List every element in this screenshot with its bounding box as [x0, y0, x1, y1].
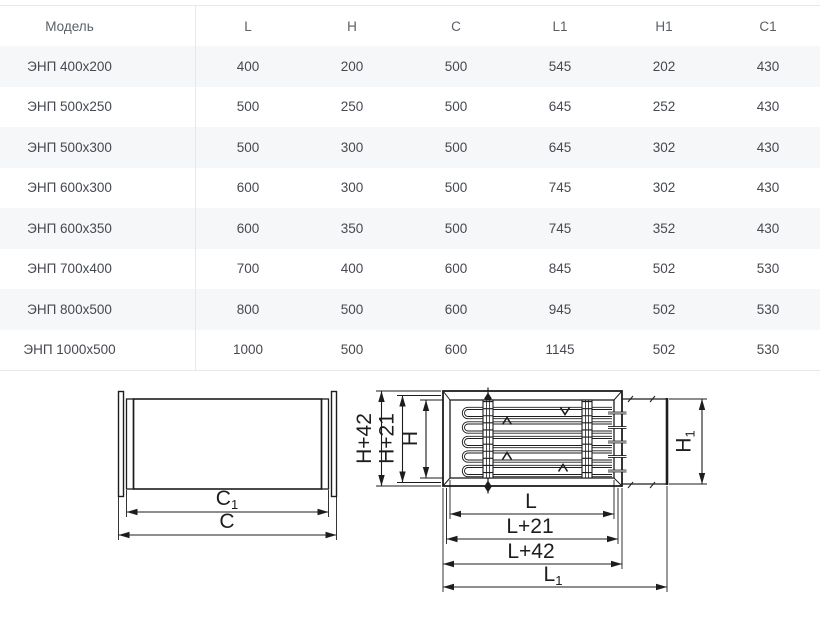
header-h: H — [300, 6, 404, 46]
table-row: ЭНП 400x200400200500545202430 — [0, 46, 820, 87]
value-cell: 202 — [612, 46, 716, 87]
value-cell: 400 — [300, 249, 404, 290]
right-flange-plate — [332, 392, 337, 497]
dimension-l1: L1 — [443, 563, 667, 588]
dimension-h21-label: H+21 — [376, 413, 399, 464]
dimension-l42-label: L+42 — [507, 540, 554, 563]
value-cell: 200 — [300, 46, 404, 87]
dimension-h-label: H — [399, 431, 422, 446]
dimension-l1-label: L1 — [544, 563, 563, 588]
value-cell: 530 — [716, 330, 820, 371]
value-cell: 352 — [612, 208, 716, 249]
value-cell: 430 — [716, 46, 820, 87]
value-cell: 430 — [716, 208, 820, 249]
value-cell: 500 — [404, 87, 508, 128]
table-row: ЭНП 500x300500300500645302430 — [0, 127, 820, 168]
dimension-h42-label: H+42 — [353, 413, 376, 464]
spec-table: Модель L H C L1 H1 C1 ЭНП 400x2004002005… — [0, 5, 820, 371]
dimension-h1-label: H1 — [673, 430, 698, 452]
dimension-l21-label: L+21 — [506, 515, 553, 538]
header-c1: C1 — [716, 6, 820, 46]
value-cell: 600 — [404, 289, 508, 330]
value-cell: 502 — [612, 289, 716, 330]
value-cell: 745 — [508, 168, 612, 209]
model-cell: ЭНП 1000x500 — [0, 330, 196, 371]
value-cell: 600 — [196, 168, 300, 209]
dimension-h: H — [399, 400, 443, 478]
value-cell: 500 — [300, 289, 404, 330]
heater-front-view-diagram: H+42 H+21 H H1 — [353, 388, 707, 593]
value-cell: 500 — [404, 208, 508, 249]
value-cell: 252 — [612, 87, 716, 128]
header-l: L — [196, 6, 300, 46]
value-cell: 530 — [716, 289, 820, 330]
table-row: ЭНП 600x350600350500745352430 — [0, 208, 820, 249]
value-cell: 500 — [404, 168, 508, 209]
value-cell: 430 — [716, 87, 820, 128]
dimension-l42: L+42 — [443, 540, 622, 564]
table-header-row: Модель L H C L1 H1 C1 — [0, 6, 820, 46]
value-cell: 302 — [612, 127, 716, 168]
value-cell: 300 — [300, 168, 404, 209]
table-row: ЭНП 600x300600300500745302430 — [0, 168, 820, 209]
value-cell: 350 — [300, 208, 404, 249]
value-cell: 250 — [300, 87, 404, 128]
model-cell: ЭНП 400x200 — [0, 46, 196, 87]
value-cell: 845 — [508, 249, 612, 290]
dimension-c1-label: C1 — [216, 487, 238, 512]
header-l1: L1 — [508, 6, 612, 46]
value-cell: 545 — [508, 46, 612, 87]
value-cell: 1000 — [196, 330, 300, 371]
clamp-bolt-bottom — [484, 481, 492, 493]
dimension-c-label: C — [219, 510, 234, 533]
value-cell: 745 — [508, 208, 612, 249]
header-h1: H1 — [612, 6, 716, 46]
value-cell: 502 — [612, 249, 716, 290]
left-flange-channel — [127, 399, 134, 489]
header-model: Модель — [0, 6, 196, 46]
value-cell: 530 — [716, 249, 820, 290]
model-cell: ЭНП 600x350 — [0, 208, 196, 249]
value-cell: 430 — [716, 168, 820, 209]
table-row: ЭНП 500x250500250500645252430 — [0, 87, 820, 128]
value-cell: 945 — [508, 289, 612, 330]
value-cell: 500 — [300, 330, 404, 371]
model-cell: ЭНП 600x300 — [0, 168, 196, 209]
value-cell: 800 — [196, 289, 300, 330]
value-cell: 500 — [404, 46, 508, 87]
value-cell: 302 — [612, 168, 716, 209]
model-cell: ЭНП 500x250 — [0, 87, 196, 128]
value-cell: 600 — [404, 330, 508, 371]
terminal-box — [622, 396, 667, 488]
duct-body — [134, 399, 322, 489]
value-cell: 600 — [404, 249, 508, 290]
dimension-l: L — [450, 490, 614, 514]
right-flange-channel — [322, 399, 329, 489]
value-cell: 645 — [508, 87, 612, 128]
value-cell: 700 — [196, 249, 300, 290]
value-cell: 1145 — [508, 330, 612, 371]
value-cell: 645 — [508, 127, 612, 168]
dimension-l21: L+21 — [447, 515, 619, 539]
table-row: ЭНП 700x400700400600845502530 — [0, 249, 820, 290]
left-flange-plate — [119, 392, 124, 497]
value-cell: 300 — [300, 127, 404, 168]
value-cell: 400 — [196, 46, 300, 87]
technical-drawings: C1 C — [0, 371, 820, 623]
support-bracket-right — [582, 400, 592, 478]
value-cell: 502 — [612, 330, 716, 371]
value-cell: 500 — [196, 127, 300, 168]
table-row: ЭНП 800x500800500600945502530 — [0, 289, 820, 330]
dimension-l-label: L — [525, 490, 537, 513]
duct-side-view-diagram: C1 C — [119, 392, 337, 541]
value-cell: 500 — [404, 127, 508, 168]
model-cell: ЭНП 700x400 — [0, 249, 196, 290]
table-row: ЭНП 1000x50010005006001145502530 — [0, 330, 820, 371]
value-cell: 600 — [196, 208, 300, 249]
header-c: C — [404, 6, 508, 46]
value-cell: 500 — [196, 87, 300, 128]
value-cell: 430 — [716, 127, 820, 168]
dimension-h1: H1 — [669, 399, 707, 484]
terminal-box-ticks — [628, 396, 655, 488]
spec-table-body: ЭНП 400x200400200500545202430ЭНП 500x250… — [0, 46, 820, 370]
model-cell: ЭНП 500x300 — [0, 127, 196, 168]
model-cell: ЭНП 800x500 — [0, 289, 196, 330]
support-bracket-left — [483, 388, 493, 494]
